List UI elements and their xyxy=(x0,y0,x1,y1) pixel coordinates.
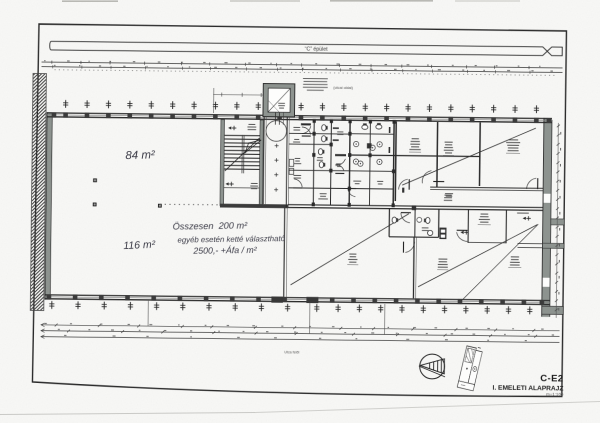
svg-text:m=1:100: m=1:100 xyxy=(546,392,564,397)
svg-text:egyéb esetén ketté választhat: egyéb esetén ketté választható xyxy=(177,234,285,245)
svg-text:Összesen 200 m²: Összesen 200 m² xyxy=(173,220,249,231)
svg-text:84 m²: 84 m² xyxy=(125,149,156,162)
svg-text:C-E2: C-E2 xyxy=(540,373,563,384)
svg-text:“C” épület: “C” épület xyxy=(305,46,328,52)
svg-text:Utca felől: Utca felől xyxy=(284,350,299,354)
svg-text:2500,- +Áfa / m²: 2500,- +Áfa / m² xyxy=(192,245,258,256)
svg-text:(utcai oldal): (utcai oldal) xyxy=(333,86,353,90)
svg-text:116 m²: 116 m² xyxy=(123,239,156,253)
